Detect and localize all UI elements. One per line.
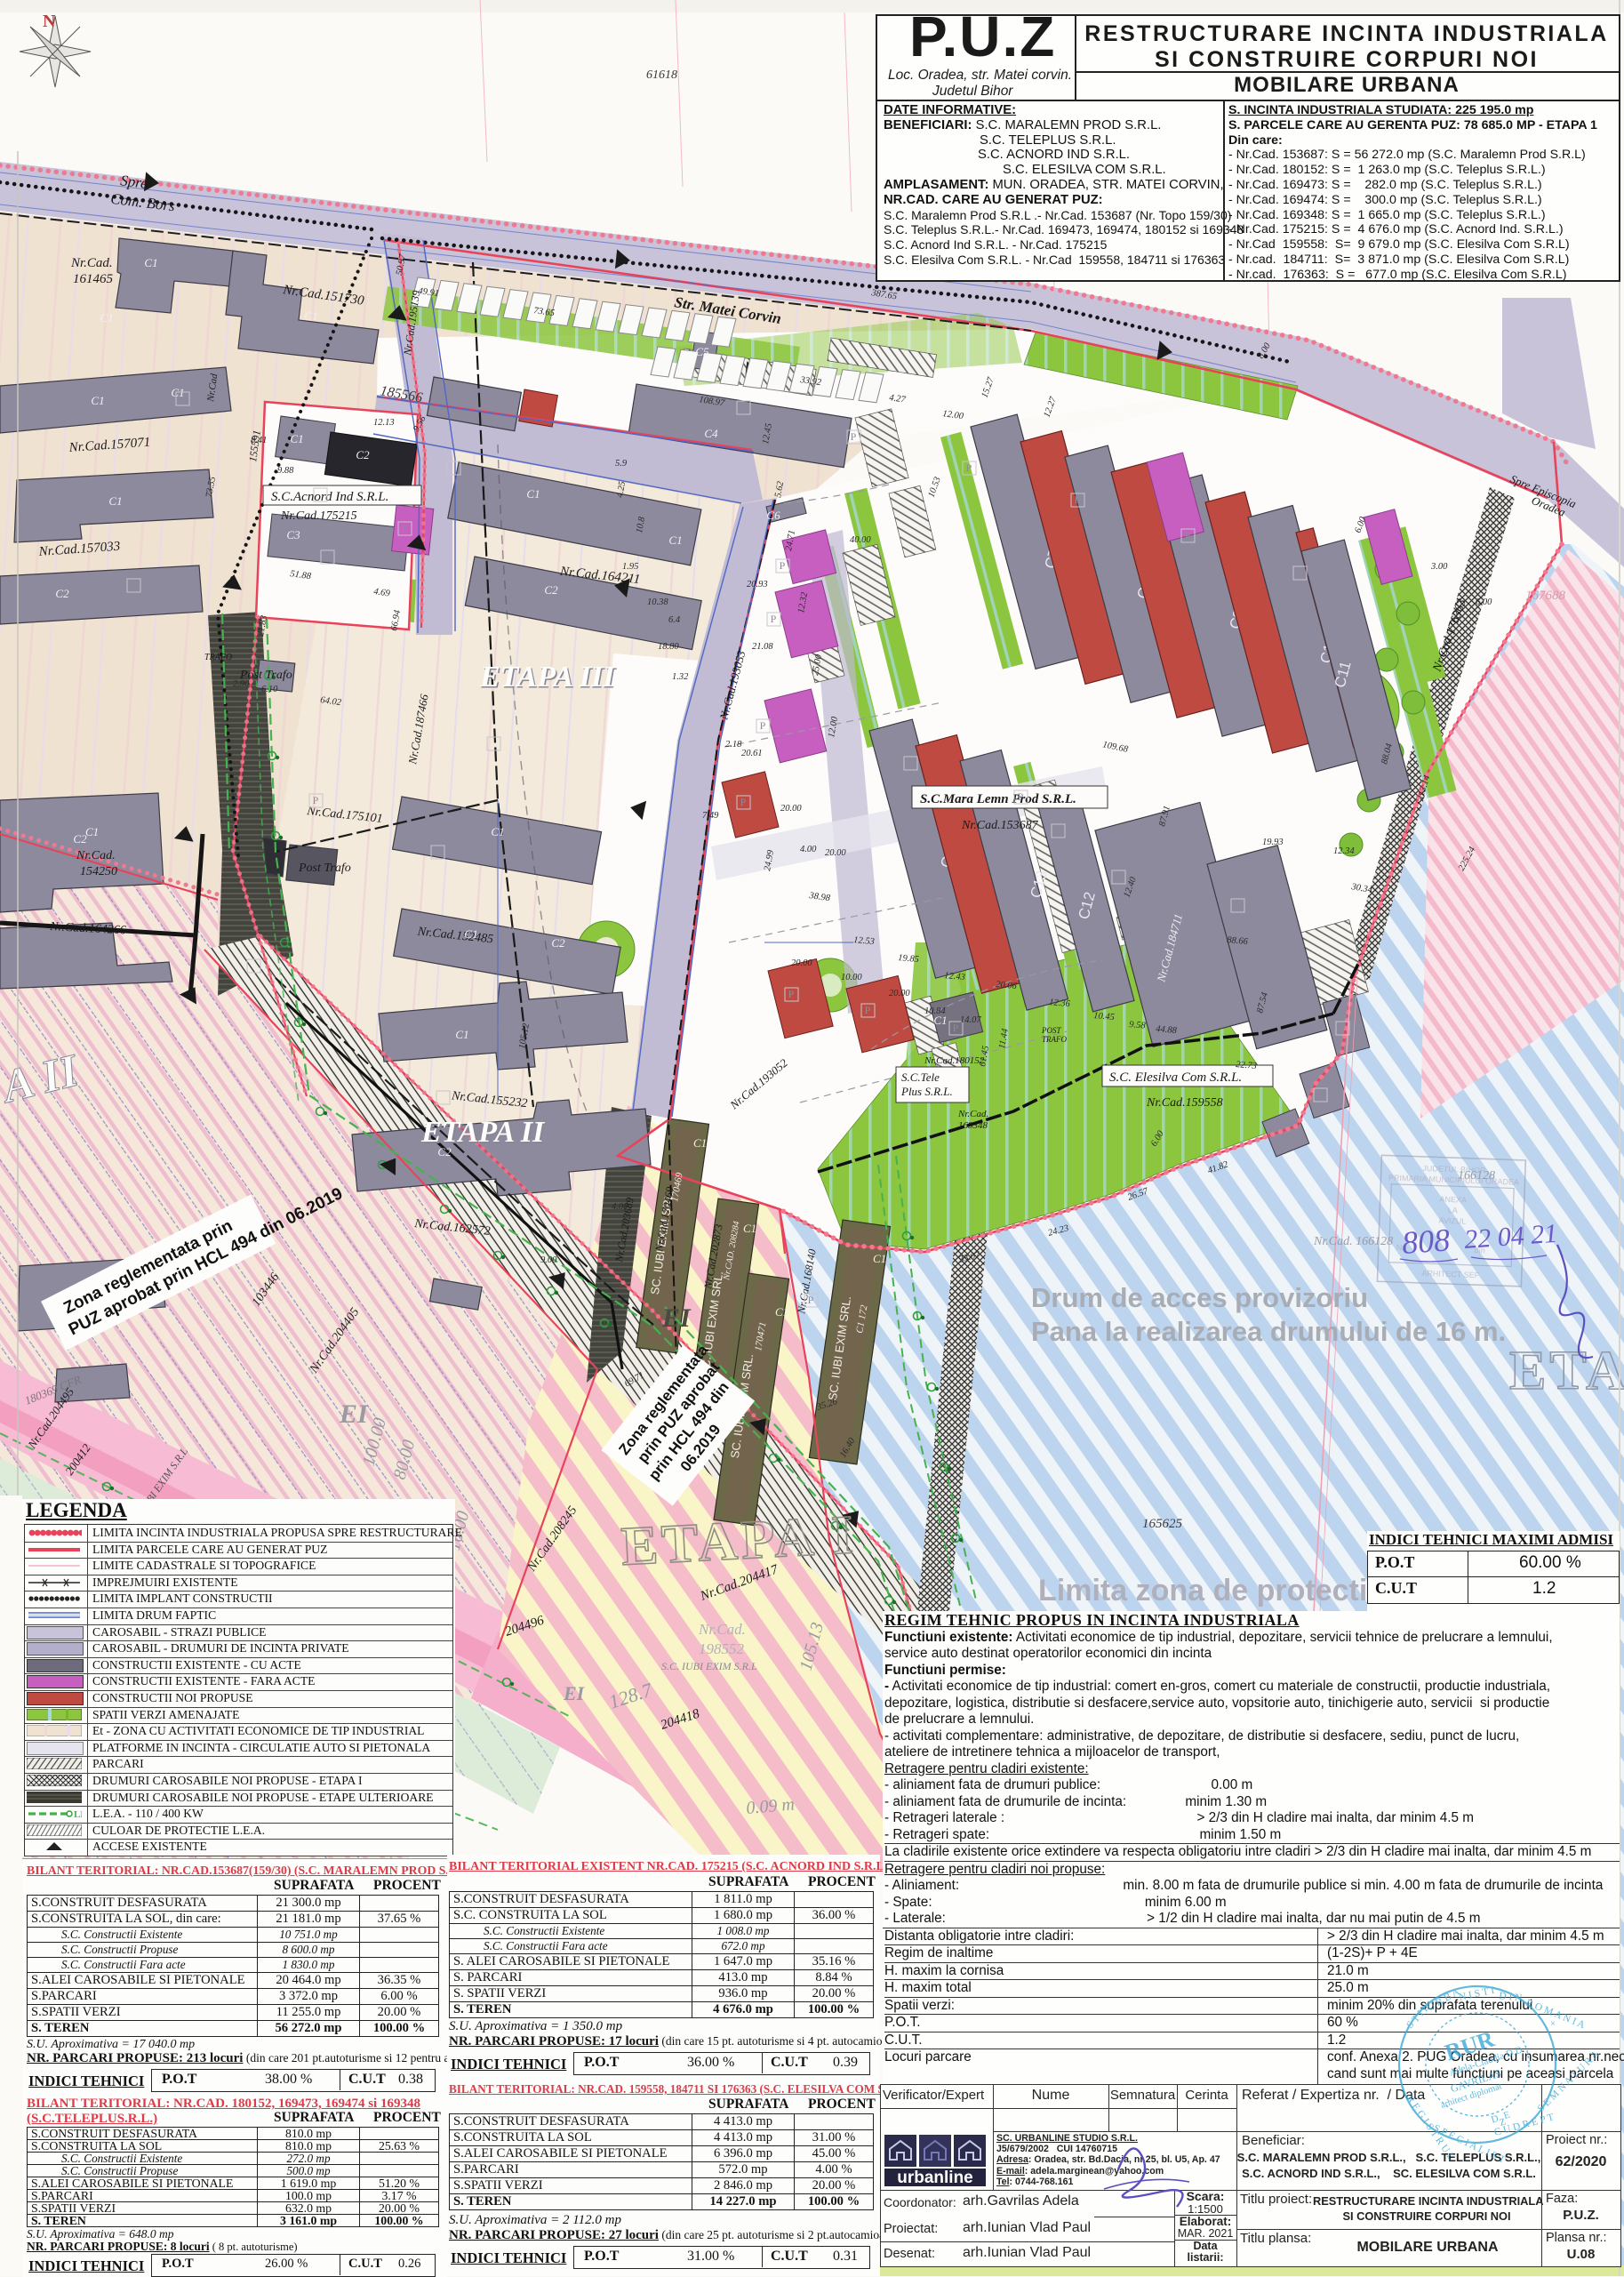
svg-text:Nr.Cad.: Nr.Cad. bbox=[698, 1621, 746, 1638]
svg-text:C1: C1 bbox=[108, 494, 122, 508]
svg-text:P: P bbox=[771, 613, 777, 625]
svg-text:9.00: 9.00 bbox=[540, 1255, 557, 1265]
svg-text:Spre: Spre bbox=[119, 172, 148, 192]
svg-text:C1: C1 bbox=[144, 256, 157, 269]
svg-text:12.34: 12.34 bbox=[1333, 846, 1355, 856]
svg-text:P: P bbox=[324, 550, 331, 563]
svg-text:P: P bbox=[535, 822, 541, 834]
svg-text:3.00: 3.00 bbox=[1430, 562, 1448, 572]
svg-text:C1: C1 bbox=[491, 825, 504, 838]
svg-text:9.88: 9.88 bbox=[277, 466, 294, 476]
svg-text:C1: C1 bbox=[85, 825, 99, 838]
svg-text:9.58: 9.58 bbox=[1129, 1020, 1147, 1031]
svg-text:Nr.Cad.175215: Nr.Cad.175215 bbox=[280, 509, 357, 523]
svg-text:P: P bbox=[740, 796, 747, 808]
svg-text:POST: POST bbox=[1041, 1026, 1061, 1035]
svg-text:TRAFO: TRAFO bbox=[204, 653, 232, 662]
svg-text:P: P bbox=[566, 499, 572, 511]
svg-text:4.00: 4.00 bbox=[800, 845, 817, 854]
svg-text:P: P bbox=[313, 794, 319, 806]
svg-text:S.C.Acnord Ind S.R.L.: S.C.Acnord Ind S.R.L. bbox=[271, 490, 388, 504]
svg-text:U R B A: U R B A bbox=[1426, 1986, 1462, 2014]
svg-text:C1: C1 bbox=[304, 309, 317, 323]
svg-text:C1: C1 bbox=[668, 533, 682, 547]
svg-text:5.9: 5.9 bbox=[615, 459, 628, 469]
svg-text:2.90: 2.90 bbox=[233, 679, 250, 689]
svg-text:C2: C2 bbox=[551, 936, 565, 950]
svg-text:P: P bbox=[788, 988, 795, 1000]
svg-text:ETAPA III: ETAPA III bbox=[479, 661, 616, 694]
svg-text:S E M N A T U R A: S E M N A T U R A bbox=[1536, 2048, 1602, 2114]
svg-text:6.4: 6.4 bbox=[668, 615, 681, 625]
svg-text:C U D R E P T: C U D R E P T bbox=[1493, 2112, 1556, 2137]
svg-text:C2: C2 bbox=[55, 587, 69, 600]
svg-text:C1: C1 bbox=[464, 927, 477, 941]
svg-text:S.C. IUBI EXIM S.R.L: S.C. IUBI EXIM S.R.L bbox=[661, 1660, 757, 1672]
svg-text:P: P bbox=[182, 259, 188, 271]
svg-text:ETA: ETA bbox=[1509, 1341, 1624, 1401]
svg-text:C1: C1 bbox=[290, 432, 303, 445]
svg-text:P: P bbox=[1185, 529, 1191, 541]
svg-text:12.36: 12.36 bbox=[1049, 998, 1071, 1009]
svg-text:12.43: 12.43 bbox=[944, 971, 965, 982]
svg-text:88.66: 88.66 bbox=[1227, 935, 1249, 947]
svg-text:N: N bbox=[43, 12, 56, 31]
svg-text:Nr.Cad.: Nr.Cad. bbox=[76, 849, 116, 862]
svg-text:EI: EI bbox=[563, 1682, 586, 1704]
svg-text:Post Trafo: Post Trafo bbox=[298, 862, 351, 875]
svg-text:10.38: 10.38 bbox=[647, 597, 668, 607]
svg-text:P: P bbox=[953, 1022, 959, 1034]
svg-text:S.C. Elesilva Com S.R.L.: S.C. Elesilva Com S.R.L. bbox=[1109, 1070, 1242, 1085]
svg-text:20.00: 20.00 bbox=[825, 848, 846, 858]
svg-text:20.00: 20.00 bbox=[791, 958, 812, 968]
svg-text:22.73: 22.73 bbox=[1236, 1060, 1257, 1071]
svg-text:P: P bbox=[851, 430, 857, 443]
svg-text:P: P bbox=[780, 559, 786, 572]
svg-text:TRAFO: TRAFO bbox=[1042, 1035, 1067, 1044]
svg-text:Nr.Cad.: Nr.Cad. bbox=[957, 1109, 988, 1119]
svg-text:14.07: 14.07 bbox=[960, 1015, 981, 1025]
svg-text:161465: 161465 bbox=[73, 272, 114, 286]
svg-text:P: P bbox=[460, 392, 466, 405]
svg-text:P: P bbox=[495, 1023, 501, 1036]
svg-text:20.61: 20.61 bbox=[741, 749, 763, 758]
svg-text:40.00: 40.00 bbox=[850, 535, 871, 545]
svg-text:Pana la realizarea drumului de: Pana la realizarea drumului de 16 m. bbox=[1031, 1316, 1506, 1347]
svg-text:P: P bbox=[760, 719, 766, 732]
svg-text:Nr.Cad.: Nr.Cad. bbox=[70, 256, 113, 270]
svg-text:P: P bbox=[1018, 790, 1024, 803]
svg-text:C5: C5 bbox=[695, 345, 709, 358]
svg-text:1.95: 1.95 bbox=[622, 562, 638, 572]
svg-text:C2: C2 bbox=[356, 448, 370, 461]
svg-text:C6: C6 bbox=[766, 509, 780, 522]
svg-text:154250: 154250 bbox=[80, 865, 117, 878]
svg-text:P: P bbox=[1235, 899, 1241, 911]
svg-text:ANEXA: ANEXA bbox=[1439, 1195, 1467, 1205]
svg-text:44.88: 44.88 bbox=[1156, 1024, 1178, 1036]
svg-text:Nr.Cad.153687: Nr.Cad.153687 bbox=[961, 819, 1039, 832]
svg-text:165625: 165625 bbox=[1142, 1517, 1183, 1531]
svg-text:198552: 198552 bbox=[699, 1640, 745, 1657]
svg-text:C1: C1 bbox=[775, 1305, 788, 1319]
svg-text:12.53: 12.53 bbox=[853, 935, 875, 947]
svg-text:P: P bbox=[1297, 566, 1303, 579]
svg-text:ETAPA II: ETAPA II bbox=[420, 1116, 546, 1149]
svg-text:C1: C1 bbox=[455, 1028, 468, 1041]
svg-text:167688: 167688 bbox=[1525, 589, 1566, 603]
svg-text:20.00: 20.00 bbox=[889, 989, 910, 998]
svg-text:+: + bbox=[1547, 2018, 1558, 2030]
svg-text:P: P bbox=[508, 924, 515, 936]
svg-text:C2: C2 bbox=[73, 832, 87, 846]
svg-text:S.C.Tele: S.C.Tele bbox=[901, 1070, 940, 1084]
svg-text:P: P bbox=[1055, 824, 1061, 837]
svg-text:P: P bbox=[402, 522, 408, 534]
svg-text:Plus S.R.L.: Plus S.R.L. bbox=[900, 1085, 953, 1098]
svg-text:P: P bbox=[1317, 1088, 1324, 1101]
svg-text:C2: C2 bbox=[544, 583, 558, 597]
svg-text:10.45: 10.45 bbox=[1093, 1011, 1115, 1022]
svg-text:EI: EI bbox=[661, 1303, 692, 1333]
svg-text:Nr.Cad. 166128: Nr.Cad. 166128 bbox=[1313, 1235, 1393, 1248]
svg-text:18.80: 18.80 bbox=[658, 642, 679, 652]
svg-text:1.32: 1.32 bbox=[672, 672, 689, 682]
svg-text:C3: C3 bbox=[286, 528, 300, 541]
svg-text:6.00: 6.00 bbox=[1476, 597, 1492, 607]
svg-text:10.84: 10.84 bbox=[924, 1006, 946, 1016]
svg-text:C1: C1 bbox=[91, 394, 104, 407]
svg-text:P: P bbox=[1075, 493, 1081, 506]
svg-text:S.C.Mara Lemn Prod S.R.L.: S.C.Mara Lemn Prod S.R.L. bbox=[920, 792, 1076, 806]
svg-text:C4: C4 bbox=[704, 427, 718, 440]
svg-text:21.08: 21.08 bbox=[752, 642, 773, 652]
svg-text:EI: EI bbox=[339, 1399, 369, 1429]
svg-text:2.18: 2.18 bbox=[725, 740, 742, 750]
svg-text:P: P bbox=[865, 1004, 871, 1016]
svg-text:20.00: 20.00 bbox=[780, 804, 802, 814]
svg-text:D I N: D I N bbox=[1499, 1991, 1524, 2004]
svg-text:12.13: 12.13 bbox=[373, 418, 395, 428]
svg-text:C1: C1 bbox=[873, 1252, 886, 1265]
svg-text:8.41: 8.41 bbox=[251, 436, 267, 445]
svg-text:19.85: 19.85 bbox=[898, 953, 919, 965]
svg-text:20.06: 20.06 bbox=[996, 980, 1018, 991]
svg-text:61618: 61618 bbox=[646, 68, 677, 82]
svg-text:P: P bbox=[966, 461, 972, 474]
svg-text:4.00: 4.00 bbox=[612, 1202, 628, 1212]
svg-text:Limita zona de protectie: Limita zona de protectie bbox=[1038, 1574, 1384, 1608]
svg-text:P: P bbox=[1340, 1022, 1346, 1034]
svg-text:LE: LE bbox=[74, 1809, 82, 1819]
svg-text:Drum de acces provizoriu: Drum de acces provizoriu bbox=[1031, 1282, 1368, 1313]
svg-text:20.93: 20.93 bbox=[747, 580, 768, 589]
svg-text:R O M A N I A: R O M A N I A bbox=[1524, 1998, 1587, 2032]
svg-text:P: P bbox=[340, 341, 346, 354]
svg-text:P: P bbox=[140, 392, 146, 405]
svg-text:Nr.Cad.159558: Nr.Cad.159558 bbox=[1146, 1096, 1223, 1110]
svg-text:Nr.Cad.180152: Nr.Cad.180152 bbox=[924, 1055, 985, 1066]
svg-text:7.49: 7.49 bbox=[702, 811, 719, 821]
svg-text:C1: C1 bbox=[743, 1222, 756, 1235]
svg-text:C1: C1 bbox=[526, 487, 540, 501]
svg-text:C1: C1 bbox=[693, 1136, 707, 1150]
svg-text:C2: C2 bbox=[437, 1145, 452, 1159]
svg-text:LA: LA bbox=[1448, 1206, 1458, 1215]
svg-text:P: P bbox=[140, 493, 146, 505]
svg-text:ETAPA I: ETAPA I bbox=[620, 1504, 858, 1577]
svg-text:P: P bbox=[808, 1294, 814, 1306]
svg-text:10.00: 10.00 bbox=[841, 973, 862, 982]
svg-text:P: P bbox=[908, 757, 914, 769]
svg-text:C1: C1 bbox=[100, 311, 113, 325]
svg-text:808: 808 bbox=[1401, 1222, 1452, 1261]
svg-text:6.10: 6.10 bbox=[261, 685, 278, 694]
svg-text:19.93: 19.93 bbox=[1262, 838, 1284, 847]
svg-text:169348: 169348 bbox=[958, 1120, 988, 1131]
svg-text:P: P bbox=[1116, 870, 1122, 883]
